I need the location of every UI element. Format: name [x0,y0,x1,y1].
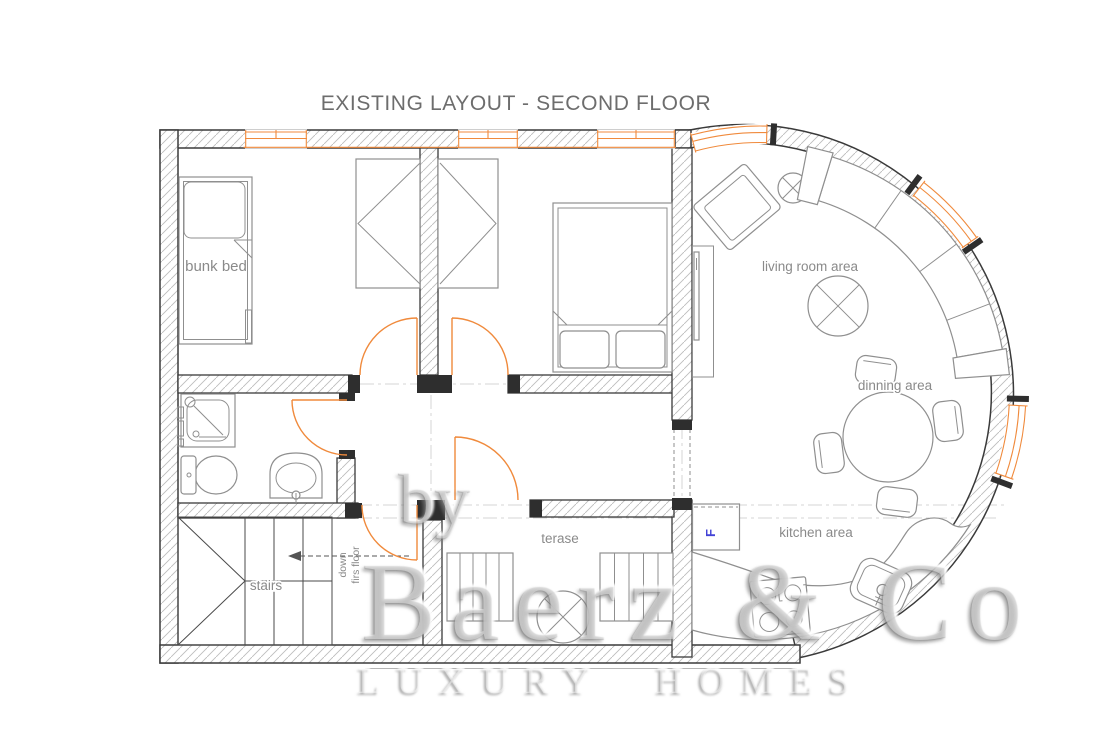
label-terrace: terase [541,531,579,546]
label-dining: dinning area [858,378,933,393]
label-bunk-bed: bunk bed [185,258,247,275]
toilet [181,456,237,494]
tv-unit [693,246,714,377]
doors [292,318,518,560]
floor-plan-page: EXISTING LAYOUT - SECOND FLOOR [0,0,1104,754]
bathroom-sink [270,453,322,503]
label-kitchen: kitchen area [779,525,853,540]
sun-lounger [447,553,513,621]
floor-plan-drawing: bunk bed living room area dinning area t… [0,0,1104,754]
label-fridge: F [703,529,718,537]
terrace-table [537,591,589,643]
dining-chair [875,486,918,519]
stove [750,577,811,638]
label-stairs: stairs [250,578,283,593]
wardrobe-bunk-room [356,159,420,288]
sun-lounger [600,553,673,621]
label-stairs-firs-floor: firs floor [350,546,362,584]
dining-chair [813,431,846,474]
wardrobe-bedroom [438,159,498,288]
staircase [178,517,412,645]
label-living-room: living room area [762,259,859,274]
shower [178,394,236,447]
dining-chair [932,399,965,442]
coffee-table [808,276,868,336]
fridge [693,504,740,550]
armchair [692,163,781,251]
label-stairs-down: down [337,552,349,577]
double-bed [553,203,672,372]
